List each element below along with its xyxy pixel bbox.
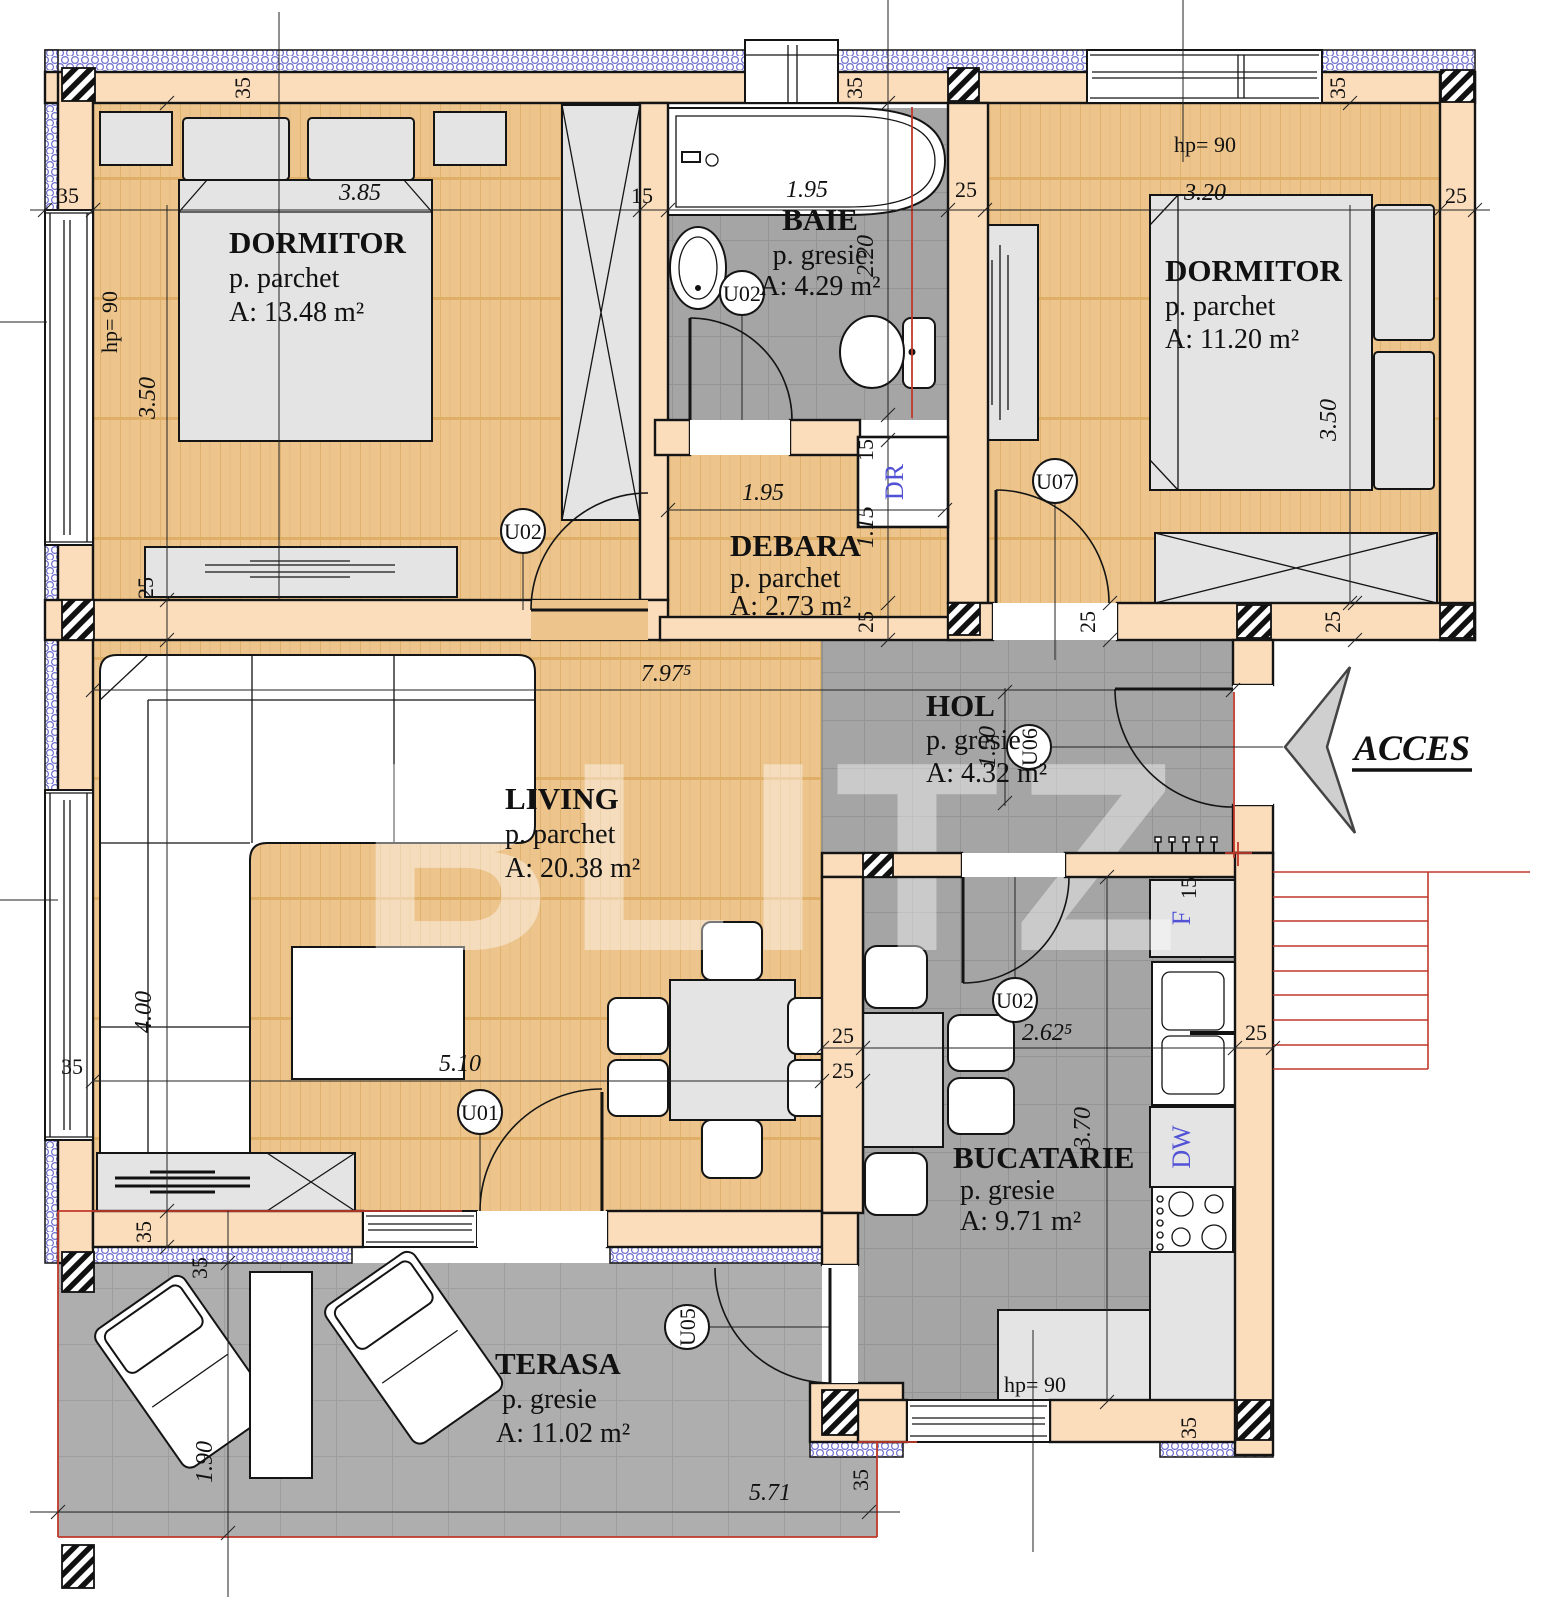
door-label: U05 — [675, 1308, 700, 1346]
door-gap — [477, 1211, 607, 1247]
dim-label: 3.85 — [338, 180, 381, 206]
door-gap — [531, 600, 648, 640]
dim-label: 1.95 — [742, 480, 784, 506]
dim-label: 35 — [230, 77, 255, 99]
door-label: U07 — [1036, 469, 1074, 494]
kitchen-chair — [948, 1078, 1014, 1134]
dim-label: 15 — [631, 183, 653, 208]
terasa-corner-floor — [810, 1455, 877, 1537]
room-finish: p. gresie — [926, 725, 1021, 756]
window-dormitor2 — [1087, 50, 1322, 103]
toilet-tank — [903, 318, 935, 388]
hp-label: hp= 90 — [1004, 1372, 1066, 1397]
dim-label: 5.10 — [439, 1051, 481, 1077]
dim-label: 2.62⁵ — [1022, 1020, 1072, 1046]
room-finish: p. gresie — [502, 1384, 597, 1415]
room-area: A: 11.02 m² — [496, 1418, 630, 1449]
dim-label: 35 — [131, 1221, 156, 1243]
stove — [1152, 1187, 1233, 1252]
room-area: A: 9.71 m² — [960, 1206, 1081, 1237]
window-bucatarie — [907, 1400, 1050, 1442]
floor-plan-svg: BLITZ — [0, 0, 1563, 1600]
dim-label: 35 — [848, 1469, 873, 1491]
door-tag-u02-dormitor1: U02 — [501, 509, 545, 553]
tv-stand — [97, 1153, 355, 1211]
door-tag-u05: U05 — [665, 1305, 709, 1349]
access-entry: ACCES — [1285, 667, 1472, 833]
fridge-label: F — [1167, 911, 1196, 925]
room-area: A: 11.20 m² — [1165, 324, 1299, 355]
room-finish: p. gresie — [960, 1175, 1055, 1206]
room-area: A: 13.48 m² — [229, 297, 364, 328]
dim-label: 35 — [61, 1054, 83, 1079]
dim-label: 15 — [853, 439, 878, 461]
door-gap — [690, 420, 790, 455]
kitchen-chair — [948, 1015, 1014, 1071]
pillow — [183, 118, 289, 180]
kitchen-counter — [1150, 1252, 1235, 1400]
dining-chair — [608, 1060, 668, 1116]
dim-label: 3.20 — [1183, 180, 1226, 206]
bathtub-tap — [682, 152, 700, 162]
access-arrow-icon — [1285, 667, 1355, 833]
door-label: U02 — [504, 519, 542, 544]
floor-plan: BLITZ — [0, 0, 1563, 1600]
room-finish: p. parchet — [1165, 291, 1276, 322]
sink-drain — [695, 285, 701, 291]
dim-label: 35 — [57, 183, 79, 208]
nightstand — [100, 112, 172, 165]
window-dormitor1 — [45, 210, 93, 545]
dim-label: 4.00 — [131, 991, 157, 1033]
room-name: DORMITOR — [229, 225, 406, 260]
door-tag-u02-bucatarie: U02 — [993, 978, 1037, 1022]
dim-label: 25 — [1445, 183, 1467, 208]
dim-label: 1.90 — [192, 1441, 218, 1483]
room-name: HOL — [926, 688, 995, 723]
terrace-table — [250, 1272, 312, 1478]
door-label: U02 — [723, 281, 761, 306]
dim-label: 15 — [1176, 877, 1201, 899]
dim-label: 25 — [133, 577, 158, 599]
door-label: U02 — [996, 988, 1034, 1013]
dining-chair — [702, 1120, 762, 1178]
dim-label: 3.50 — [1316, 399, 1342, 442]
dim-label: 25 — [1075, 611, 1100, 633]
room-name: LIVING — [505, 781, 619, 816]
dim-label: 3.50 — [135, 377, 161, 420]
room-area: A: 2.73 m² — [730, 591, 851, 622]
kitchen-chair — [865, 1153, 927, 1215]
dim-label: 35 — [1176, 1417, 1201, 1439]
dishwasher-label: DW — [1167, 1125, 1196, 1169]
pillow — [308, 118, 414, 180]
pillow — [1374, 205, 1434, 340]
terrace-fixed-window — [363, 1211, 477, 1247]
dim-label: 25 — [1320, 611, 1345, 633]
nightstand — [434, 112, 506, 165]
vent-shaft — [745, 40, 838, 103]
dim-label: 35 — [1325, 77, 1350, 99]
door-tag-u02-baie: U02 — [720, 271, 764, 315]
access-label: ACCES — [1352, 728, 1470, 768]
entrance-gap — [1233, 685, 1273, 805]
room-area: A: 4.32 m² — [926, 758, 1047, 789]
dim-label: 7.97⁵ — [641, 661, 691, 687]
dim-label: 25 — [955, 177, 977, 202]
dressing-label: DR — [880, 463, 909, 500]
room-name: BUCATARIE — [953, 1140, 1134, 1175]
room-name: BAIE — [782, 202, 858, 237]
kitchen-table — [860, 1013, 943, 1147]
stairs — [1273, 872, 1530, 1069]
dim-label: 1.95 — [786, 177, 828, 203]
room-area: A: 4.29 m² — [759, 271, 880, 302]
door-tag-u07: U07 — [1033, 459, 1077, 503]
hp-label: hp= 90 — [1174, 132, 1236, 157]
toilet-bowl — [840, 316, 904, 388]
door-gap — [822, 1265, 858, 1383]
room-finish: p. parchet — [730, 563, 841, 594]
dim-label: 25 — [832, 1023, 854, 1048]
dim-label: 25 — [832, 1058, 854, 1083]
dim-label: 35 — [842, 77, 867, 99]
room-area: A: 20.38 m² — [505, 853, 640, 884]
hp-label: hp= 90 — [97, 291, 122, 353]
dim-label: 35 — [187, 1257, 212, 1279]
room-finish: p. parchet — [229, 263, 340, 294]
door-tag-u01: U01 — [458, 1090, 502, 1134]
door-gap — [962, 853, 1065, 877]
dim-label: 25 — [1245, 1020, 1267, 1045]
room-finish: p. parchet — [505, 819, 616, 850]
room-name: TERASA — [495, 1346, 621, 1381]
room-name: DEBARA — [730, 528, 862, 563]
pillow — [1374, 352, 1434, 489]
dim-label: 25 — [853, 611, 878, 633]
dim-label: 5.71 — [749, 1480, 791, 1506]
room-name: DORMITOR — [1165, 253, 1342, 288]
room-finish: p. gresie — [773, 240, 868, 271]
door-label: U01 — [461, 1100, 499, 1125]
